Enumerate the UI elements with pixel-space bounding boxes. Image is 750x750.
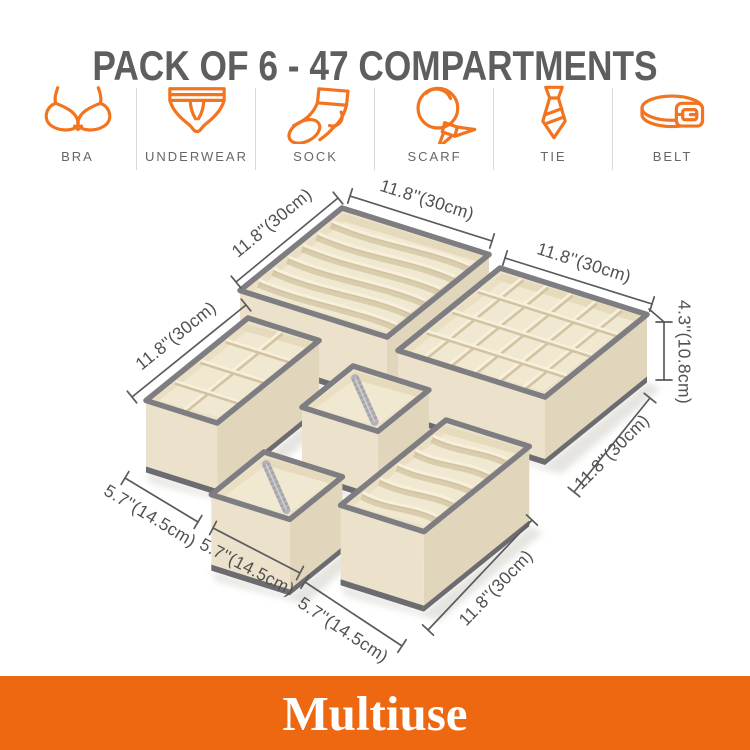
icon-cell-belt: BELT	[613, 80, 732, 172]
organizer-open-box-small	[302, 366, 429, 501]
dimension-c_front: 5.7''(14.5cm)	[101, 472, 202, 551]
icon-label: SOCK	[293, 149, 338, 164]
dimension-label: 5.7''(14.5cm)	[101, 480, 200, 551]
dimension-e_front: 5.7''(14.5cm)	[196, 521, 303, 599]
dimension-label: 11.8''(30cm)	[535, 238, 634, 286]
bottom-banner: Multiuse	[0, 676, 750, 750]
dimension-label: 11.8''(30cm)	[455, 546, 537, 630]
icon-cell-tie: TIE	[494, 80, 613, 172]
icon-label: TIE	[540, 149, 566, 164]
underwear-icon	[155, 82, 239, 144]
dimension-label: 5.7''(14.5cm)	[196, 534, 297, 600]
banner-label: Multiuse	[282, 685, 467, 742]
icon-label: BRA	[61, 149, 94, 164]
dimension-c_left: 11.8''(30cm)	[127, 297, 250, 403]
icon-label: UNDERWEAR	[145, 149, 248, 164]
dimension-label: 11.8''(30cm)	[228, 184, 316, 261]
dimension-label: 4.3''(10.8cm)	[675, 300, 695, 404]
organizer-box-6-slot	[341, 420, 530, 612]
bra-icon	[36, 82, 120, 144]
belt-icon	[631, 82, 715, 144]
organizer-box-24-cell	[398, 268, 647, 465]
dimension-label: 11.8''(30cm)	[378, 175, 477, 224]
organizer-box-8-cell	[146, 318, 319, 495]
dimension-a_top: 11.8''(30cm)	[348, 175, 495, 248]
dimension-label: 11.8''(30cm)	[131, 297, 219, 374]
dimension-label: 11.8''(30cm)	[570, 410, 653, 493]
icon-label: BELT	[653, 149, 693, 164]
scarf-icon	[393, 82, 477, 144]
icon-cell-scarf: SCARF	[375, 80, 494, 172]
dimension-f_right: 11.8''(30cm)	[423, 515, 538, 635]
dimension-b_top: 11.8''(30cm)	[503, 238, 654, 311]
icon-cell-bra: BRA	[18, 80, 137, 172]
organizer-open-box-small	[211, 452, 342, 595]
icon-cell-underwear: UNDERWEAR	[137, 80, 256, 172]
icon-row: BRA UNDERWEAR SOCK SCARF	[18, 80, 732, 172]
dimension-b_right: 11.8''(30cm)	[568, 393, 656, 496]
icon-cell-sock: SOCK	[256, 80, 375, 172]
organizer-box-7-slot	[240, 208, 489, 405]
sock-icon	[274, 82, 358, 144]
dimension-label: 5.7''(14.5cm)	[294, 593, 392, 667]
dimension-b_height: 4.3''(10.8cm)	[649, 300, 695, 404]
icon-label: SCARF	[407, 149, 461, 164]
dimension-a_left: 11.8''(30cm)	[228, 184, 343, 288]
tie-icon	[512, 82, 596, 144]
dimension-f_front: 5.7''(14.5cm)	[294, 576, 406, 667]
